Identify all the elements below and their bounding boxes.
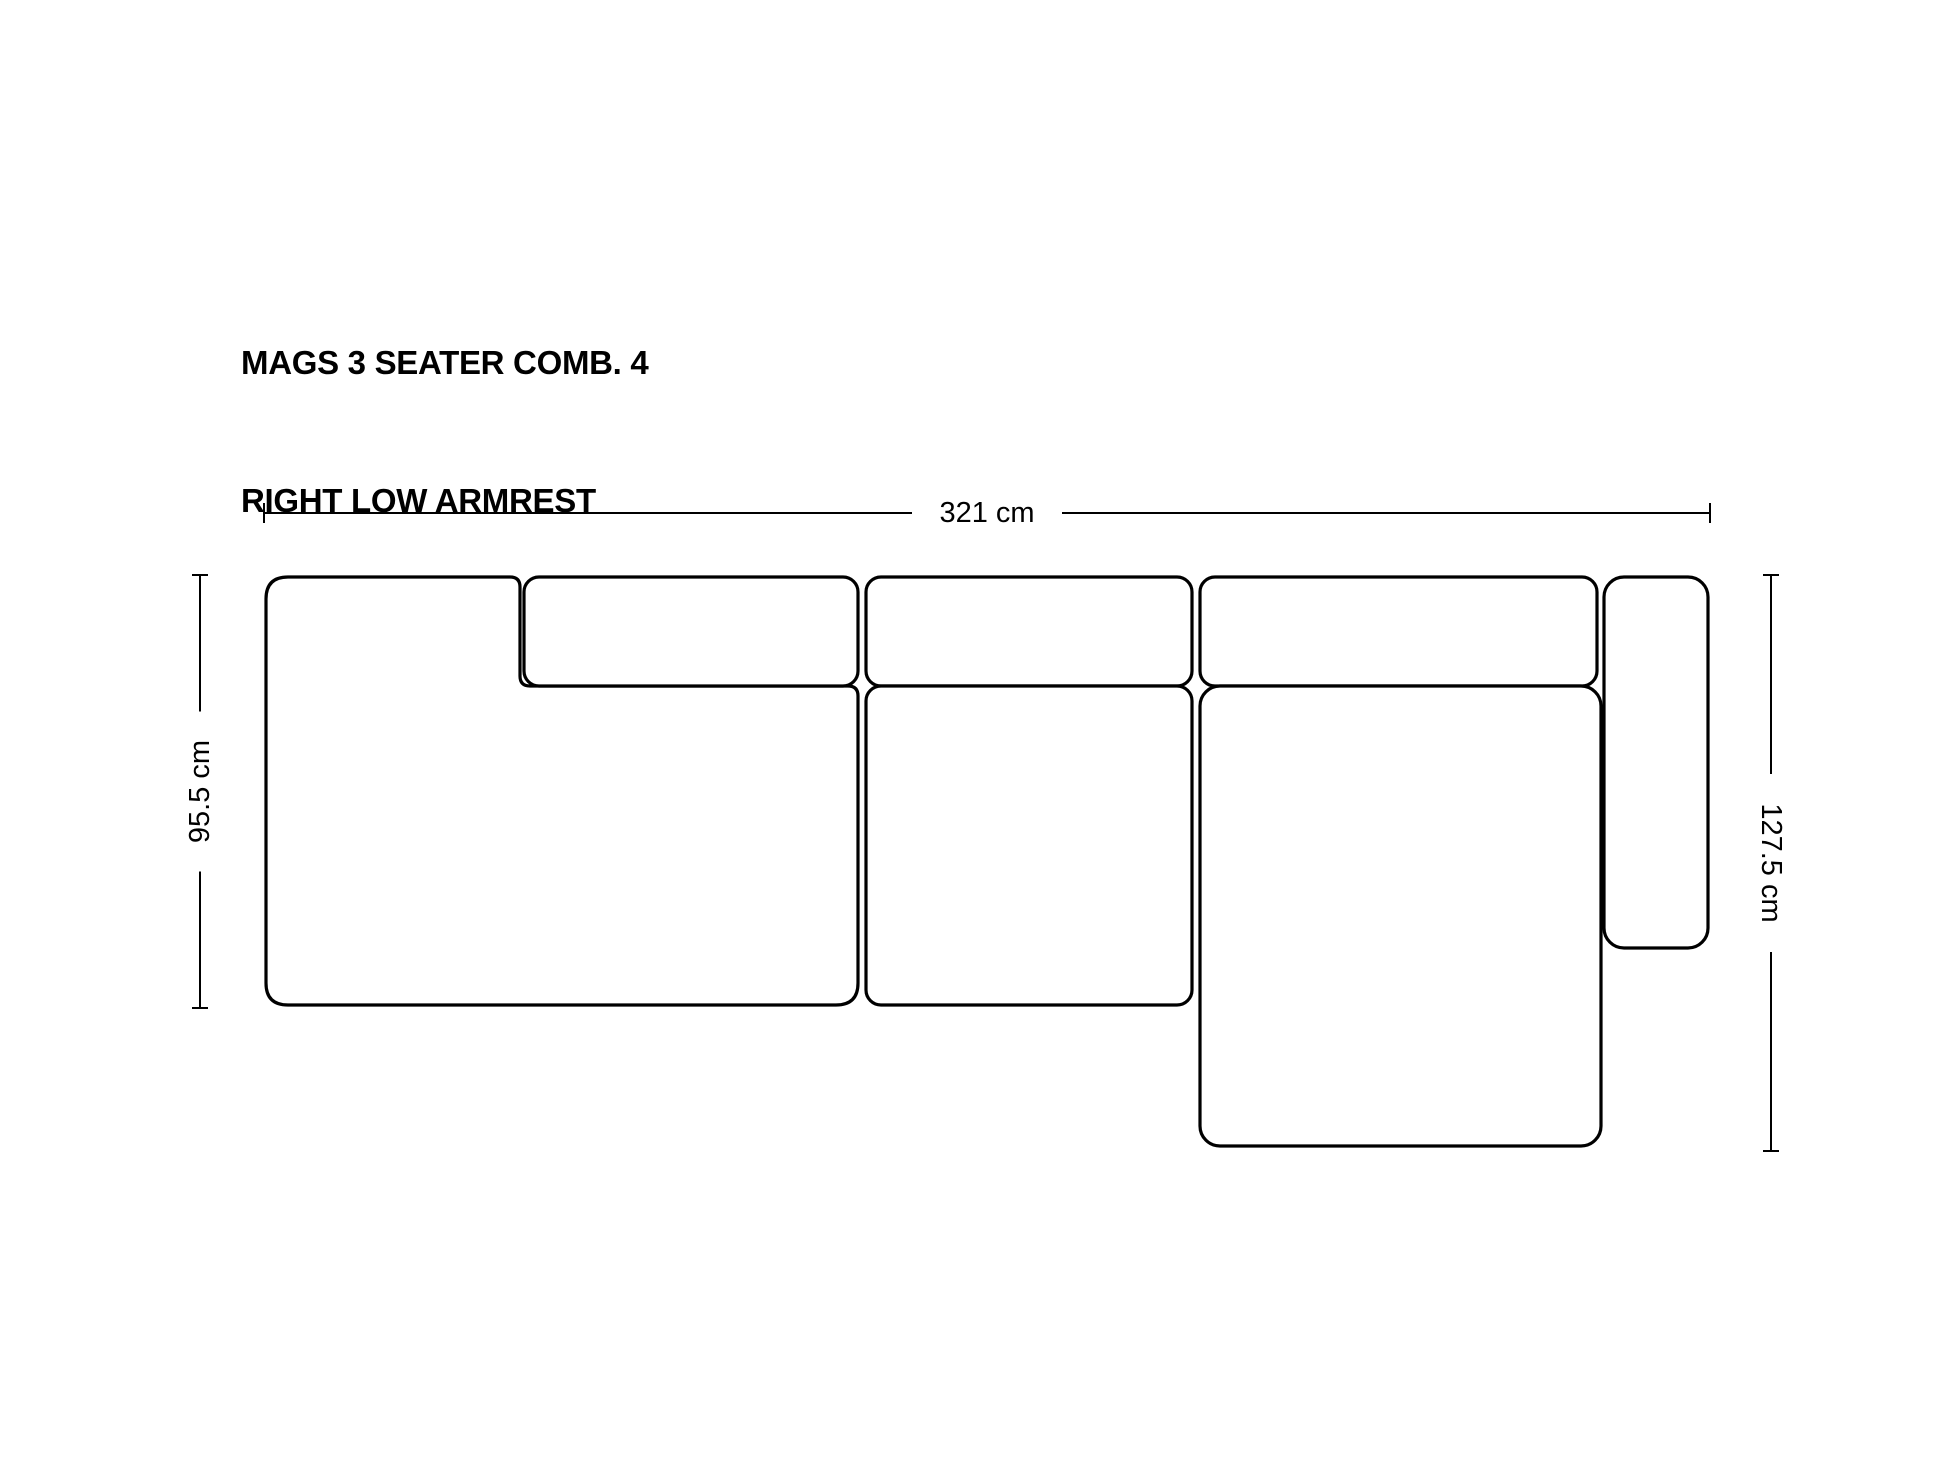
dim-left-depth-label: 95.5 cm: [184, 740, 216, 843]
module-left-backrest: [524, 577, 858, 686]
module-middle-backrest: [866, 577, 1192, 686]
dim-right-depth-label: 127.5 cm: [1755, 803, 1787, 922]
module-right-low-armrest: [1604, 577, 1708, 948]
dim-overall-width-label: 321 cm: [939, 497, 1034, 529]
module-middle-seat: [866, 686, 1192, 1005]
module-right-backrest: [1200, 577, 1597, 686]
module-chaise-longue-seat: [1200, 686, 1601, 1146]
sofa-top-view-diagram: 321 cm95.5 cm127.5 cm: [0, 0, 1946, 1464]
product-dimension-diagram-page: MAGS 3 SEATER COMB. 4 RIGHT LOW ARMREST …: [0, 0, 1946, 1464]
